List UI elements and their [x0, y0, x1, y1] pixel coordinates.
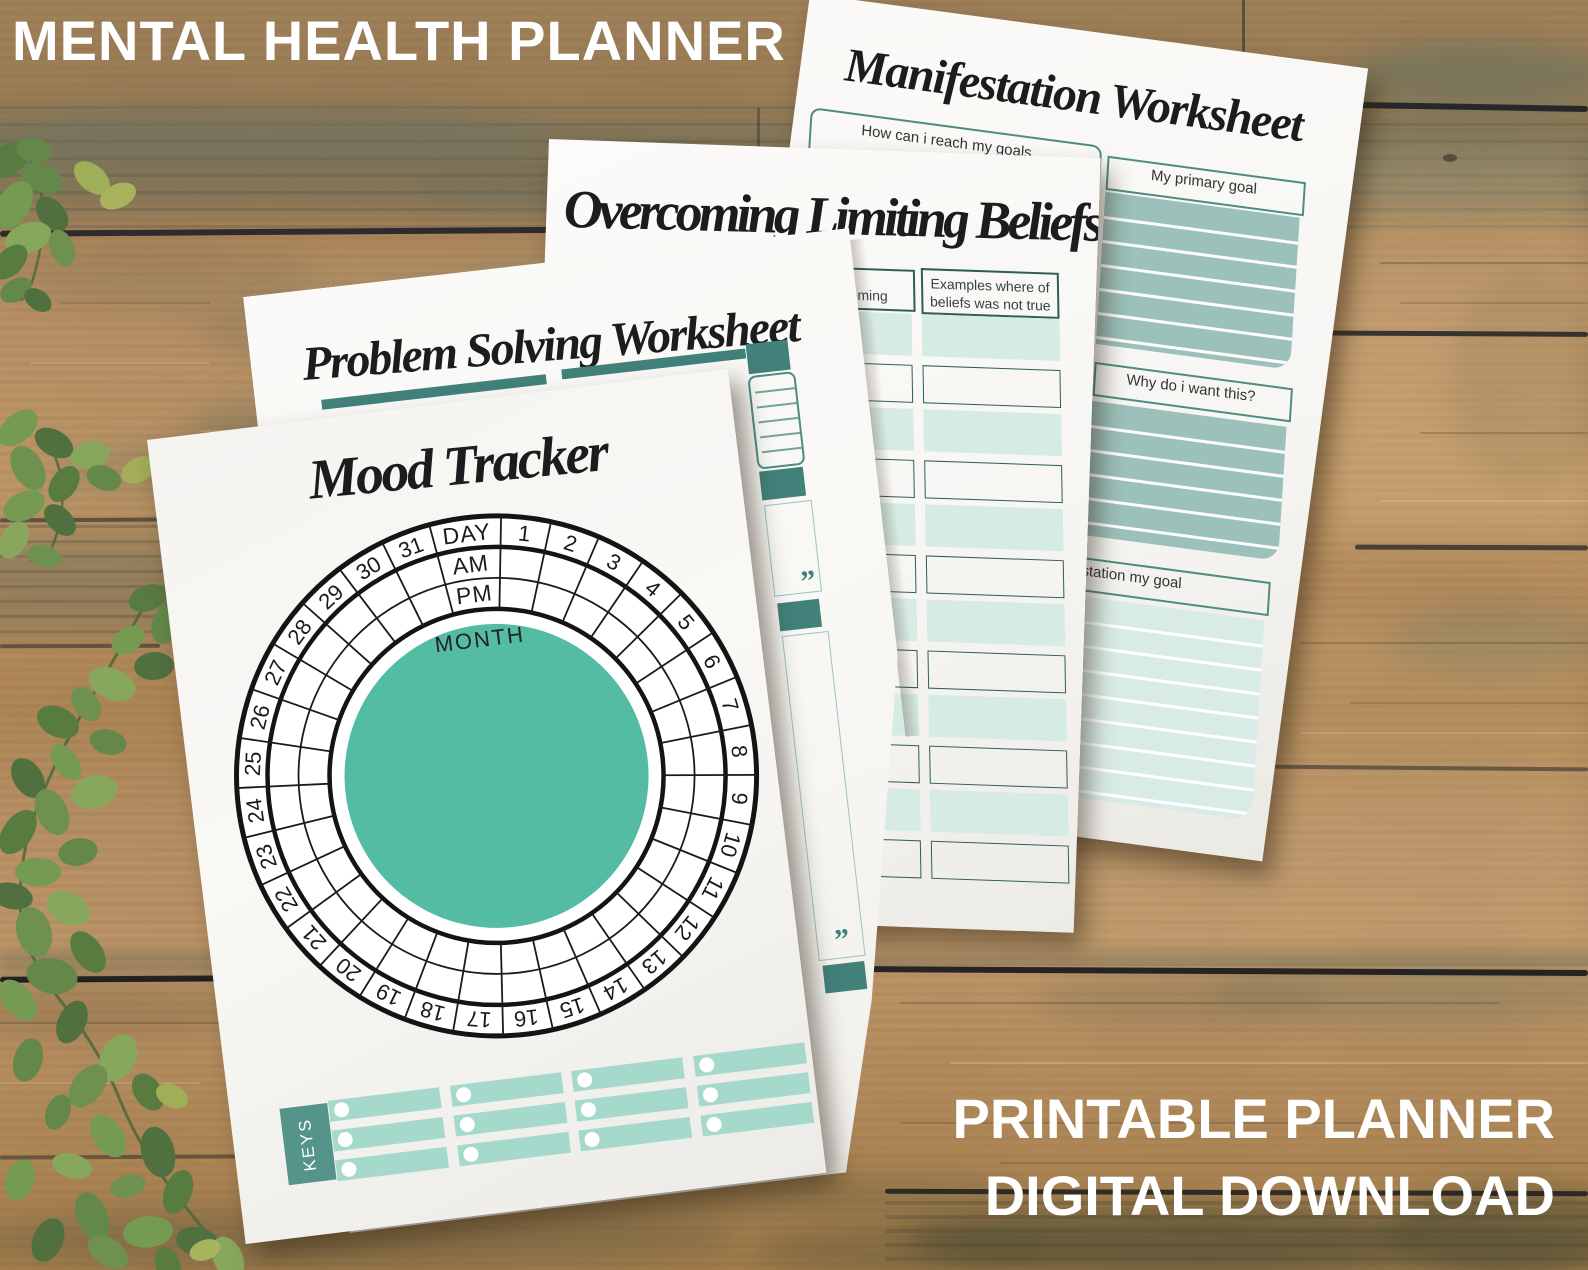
svg-text:17: 17	[466, 1006, 492, 1033]
svg-text:24: 24	[241, 797, 269, 825]
svg-text:9: 9	[727, 791, 753, 806]
svg-text:AM: AM	[451, 549, 490, 579]
svg-text:PM: PM	[455, 579, 494, 609]
svg-text:16: 16	[513, 1004, 540, 1032]
svg-text:25: 25	[240, 751, 266, 777]
svg-text:8: 8	[726, 744, 752, 759]
